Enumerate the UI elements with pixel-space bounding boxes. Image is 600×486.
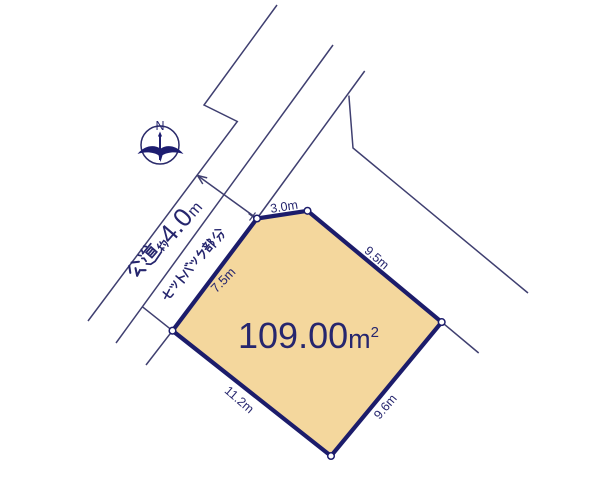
svg-text:N: N: [155, 119, 164, 133]
